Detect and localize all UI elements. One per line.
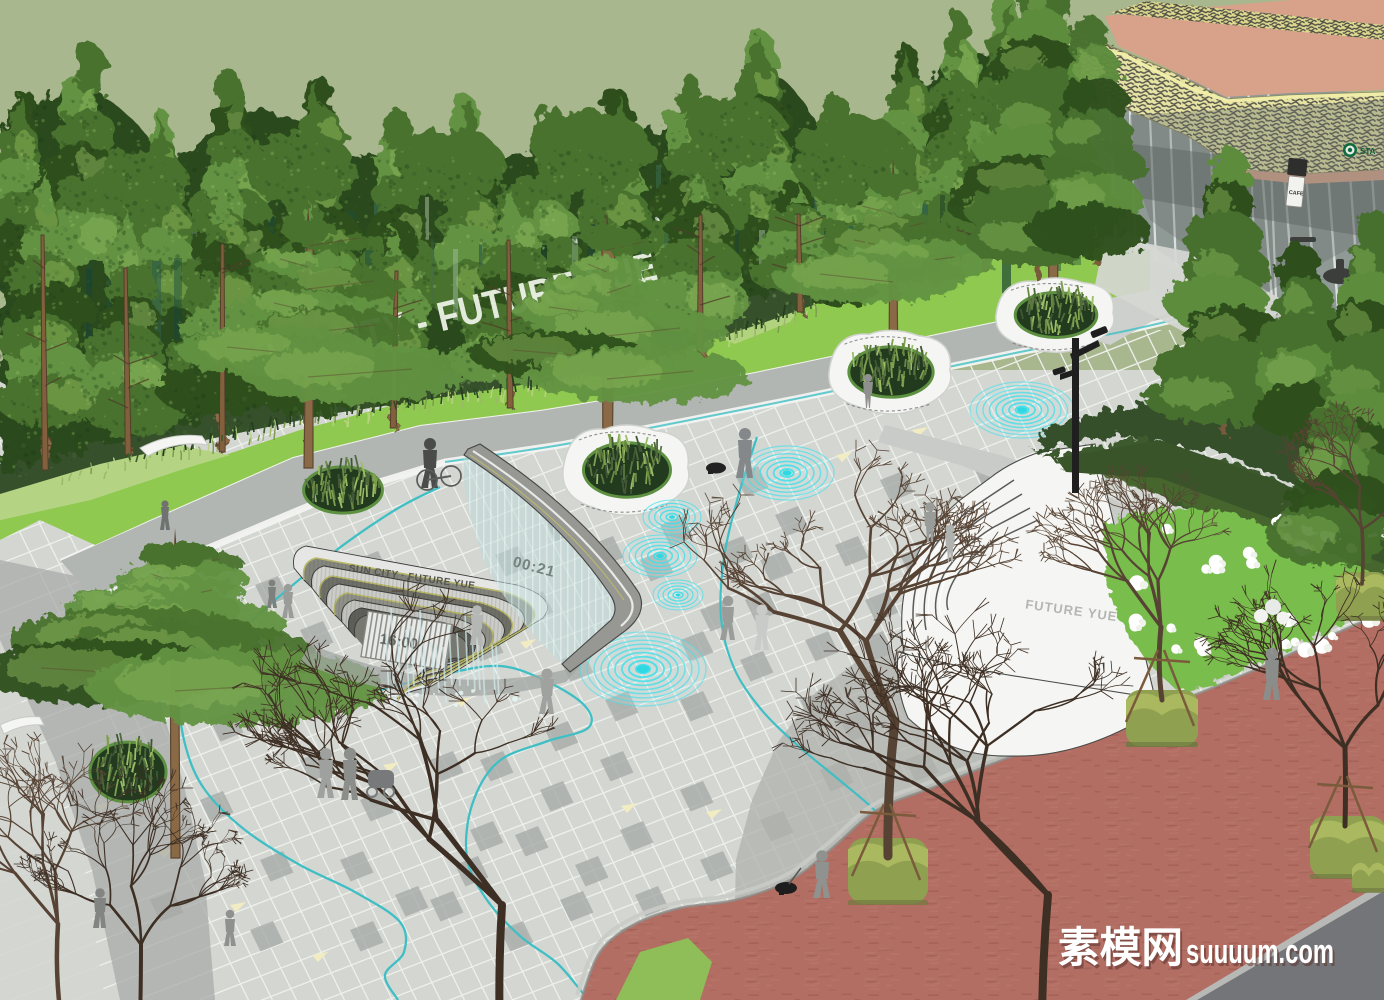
svg-text:STA: STA — [1360, 147, 1376, 156]
svg-text:suuuum.com: suuuum.com — [1186, 933, 1334, 971]
svg-text:素模网: 素模网 — [1058, 924, 1183, 971]
